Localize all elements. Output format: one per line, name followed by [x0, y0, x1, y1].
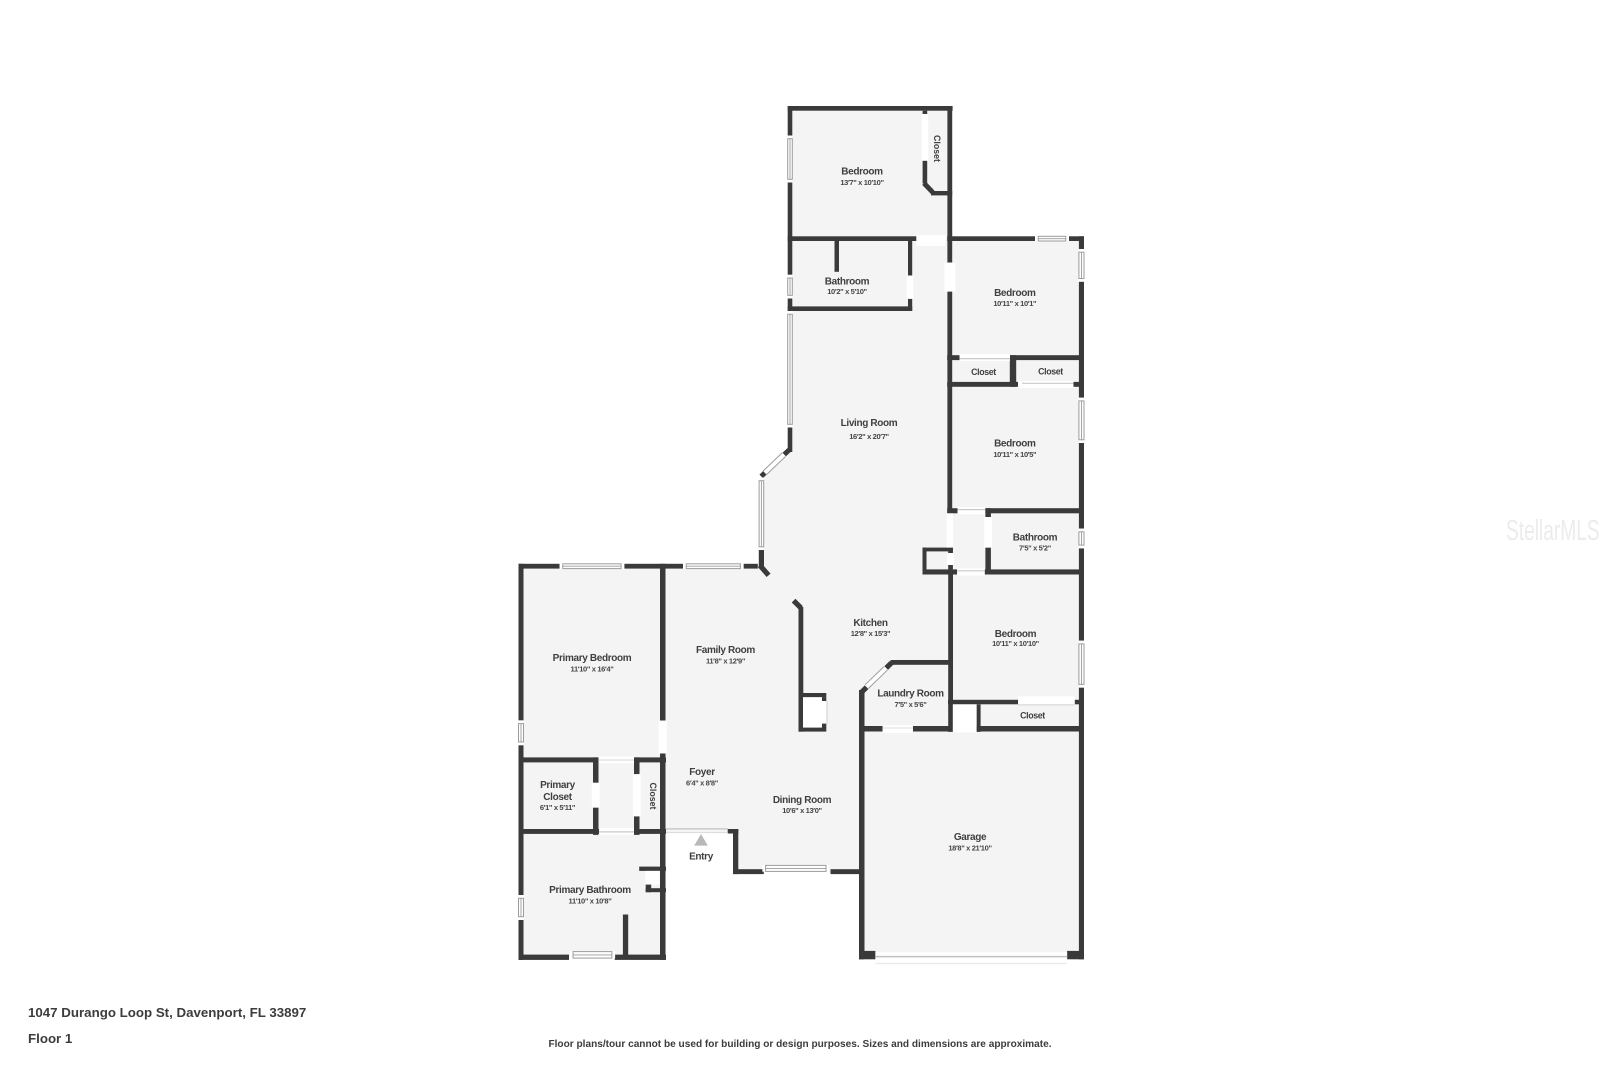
svg-text:16′2" x 20′7": 16′2" x 20′7" — [849, 432, 889, 441]
svg-text:7′5" x 5′6": 7′5" x 5′6" — [895, 700, 928, 709]
svg-text:10′2" x 5′10": 10′2" x 5′10" — [827, 287, 867, 296]
svg-text:10′11" x 10′1": 10′11" x 10′1" — [993, 299, 1037, 308]
svg-text:6′4" x 8′8": 6′4" x 8′8" — [686, 778, 719, 787]
svg-text:11′10" x 10′8": 11′10" x 10′8" — [569, 896, 613, 905]
svg-text:Dining Room: Dining Room — [773, 795, 832, 806]
svg-text:18′8" x 21′10": 18′8" x 21′10" — [948, 844, 992, 853]
svg-text:Bedroom: Bedroom — [841, 167, 883, 178]
svg-text:Bathroom: Bathroom — [825, 276, 870, 287]
svg-text:Family Room: Family Room — [696, 645, 755, 656]
svg-text:Kitchen: Kitchen — [853, 618, 887, 629]
svg-text:Bathroom: Bathroom — [1013, 532, 1058, 543]
svg-text:10′11" x 10′5": 10′11" x 10′5" — [993, 450, 1037, 459]
svg-text:Closet: Closet — [648, 783, 658, 810]
svg-text:Bedroom: Bedroom — [994, 439, 1036, 450]
svg-text:10′6" x 13′0": 10′6" x 13′0" — [782, 806, 822, 815]
svg-text:Closet: Closet — [932, 135, 942, 162]
svg-text:Primary: Primary — [540, 780, 576, 791]
svg-text:7′5" x 5′2": 7′5" x 5′2" — [1019, 544, 1052, 553]
svg-text:Closet: Closet — [543, 792, 572, 803]
svg-text:Closet: Closet — [1038, 367, 1063, 377]
svg-text:Closet: Closet — [971, 367, 996, 377]
svg-text:Living Room: Living Room — [841, 418, 898, 429]
svg-text:Bedroom: Bedroom — [994, 288, 1036, 299]
svg-text:11′10" x 16′4": 11′10" x 16′4" — [571, 665, 615, 674]
svg-text:Entry: Entry — [689, 852, 714, 863]
svg-text:10′11" x 10′10": 10′11" x 10′10" — [992, 639, 1040, 648]
svg-text:Primary Bathroom: Primary Bathroom — [549, 885, 631, 896]
svg-text:12′8" x 15′3": 12′8" x 15′3" — [851, 629, 891, 638]
svg-text:6′1" x 5′11": 6′1" x 5′11" — [540, 803, 576, 812]
svg-text:13′7" x 10′10": 13′7" x 10′10" — [840, 178, 884, 187]
svg-text:Primary Bedroom: Primary Bedroom — [553, 653, 632, 664]
svg-text:Laundry Room: Laundry Room — [877, 688, 944, 699]
svg-text:Garage: Garage — [954, 832, 987, 843]
svg-text:Closet: Closet — [1020, 710, 1045, 720]
svg-text:Foyer: Foyer — [689, 767, 715, 778]
svg-text:Bedroom: Bedroom — [995, 629, 1037, 640]
svg-text:11′8" x 12′9": 11′8" x 12′9" — [706, 657, 746, 666]
